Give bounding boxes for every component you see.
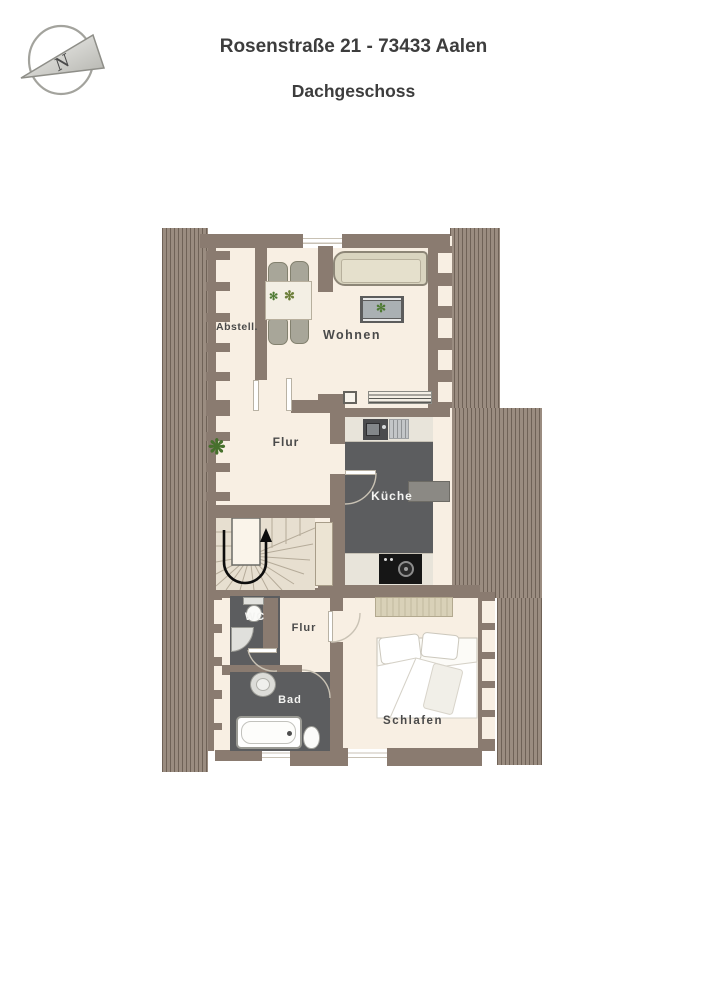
plant-icon: ✻ [284,289,295,302]
floor-plan-page: N Rosenstraße 21 - 73433 Aalen Dachgesch… [0,0,707,1000]
knee-wall-marker [206,282,230,291]
knee-wall-opening [214,633,222,657]
knee-wall-opening [482,688,495,710]
dining-chair [290,318,309,344]
dining-chair [268,319,288,345]
door-leaf-abstell [253,380,259,411]
room-label-wohnen: Wohnen [320,329,384,342]
room-label-kueche: Küche [361,490,423,502]
kitchen-faucet [382,425,386,429]
room-label-flur-lower: Flur [285,623,323,634]
wall-divider-top [318,246,333,292]
bed [376,632,478,720]
room-label-bad: Bad [271,695,309,706]
plant-icon: ❋ [208,437,226,458]
abstell-south-wall [208,400,228,413]
knee-wall-marker [206,251,230,260]
bathtub-drain [287,731,292,736]
exterior-wall-bottom-slab [387,748,482,766]
stove-burner-dot [404,567,408,571]
plant-icon: ✻ [376,302,386,314]
flur-north-wall [291,400,318,413]
room-label-abstell: Abstell. [212,322,262,333]
knee-wall-opening [214,699,222,723]
door-leaf-wohnen [286,378,292,411]
knee-wall-marker [206,343,230,352]
knee-wall-opening [482,717,495,739]
plant-icon: ✻ [269,292,278,303]
page-title: Rosenstraße 21 - 73433 Aalen [0,36,707,58]
room-label-schlafen: Schlafen [380,716,446,728]
door-leaf-schlafen [328,611,333,642]
door-leaf-wc [248,648,277,653]
kueche-top-wall [330,408,450,417]
stove-knob [384,558,387,561]
room-label-flur-upper: Flur [264,436,308,448]
knee-wall-opening [438,350,452,370]
stove-knob [390,558,393,561]
knee-wall-opening [482,659,495,681]
knee-wall-opening [438,286,452,306]
room-label-wc: WC [239,612,271,623]
knee-wall-opening [214,666,222,690]
knee-wall-opening [214,730,222,751]
knee-wall-marker [206,492,230,501]
floor-grille [368,391,432,404]
knee-wall-opening [482,601,495,623]
kitchen-drainer [389,419,409,439]
kueche-door-opening [330,444,345,474]
knee-wall-marker [206,463,230,472]
sofa-seat [341,259,421,283]
knee-wall-opening [438,318,452,338]
roof-hatch-right-lower [497,598,542,765]
duct-box [343,391,357,404]
pillow [421,632,459,660]
wc-right-wall [263,598,278,648]
page-subtitle: Dachgeschoss [0,81,707,102]
staircase [216,518,315,590]
bedroom-bench [375,597,453,617]
tv-board-bottom [363,319,401,321]
window-bottom-right [348,749,387,762]
knee-wall-marker [206,372,230,381]
stair-void [232,518,260,565]
knee-wall-opening [438,382,452,402]
knee-wall-opening [214,600,222,624]
roof-hatch-left [162,228,208,772]
stairs-top-wall [208,505,345,518]
tv-board-top [363,298,401,300]
bad-toilet [303,726,320,749]
hall-cabinet [315,522,333,586]
knee-wall-opening [482,630,495,652]
wc-toilet-tank [243,597,264,605]
door-leaf-kueche [345,470,376,475]
knee-wall-opening [438,253,452,273]
roof-hatch-right-upper [450,228,500,408]
kitchen-sink-basin [366,423,380,436]
bad-sink-basin [256,678,270,691]
